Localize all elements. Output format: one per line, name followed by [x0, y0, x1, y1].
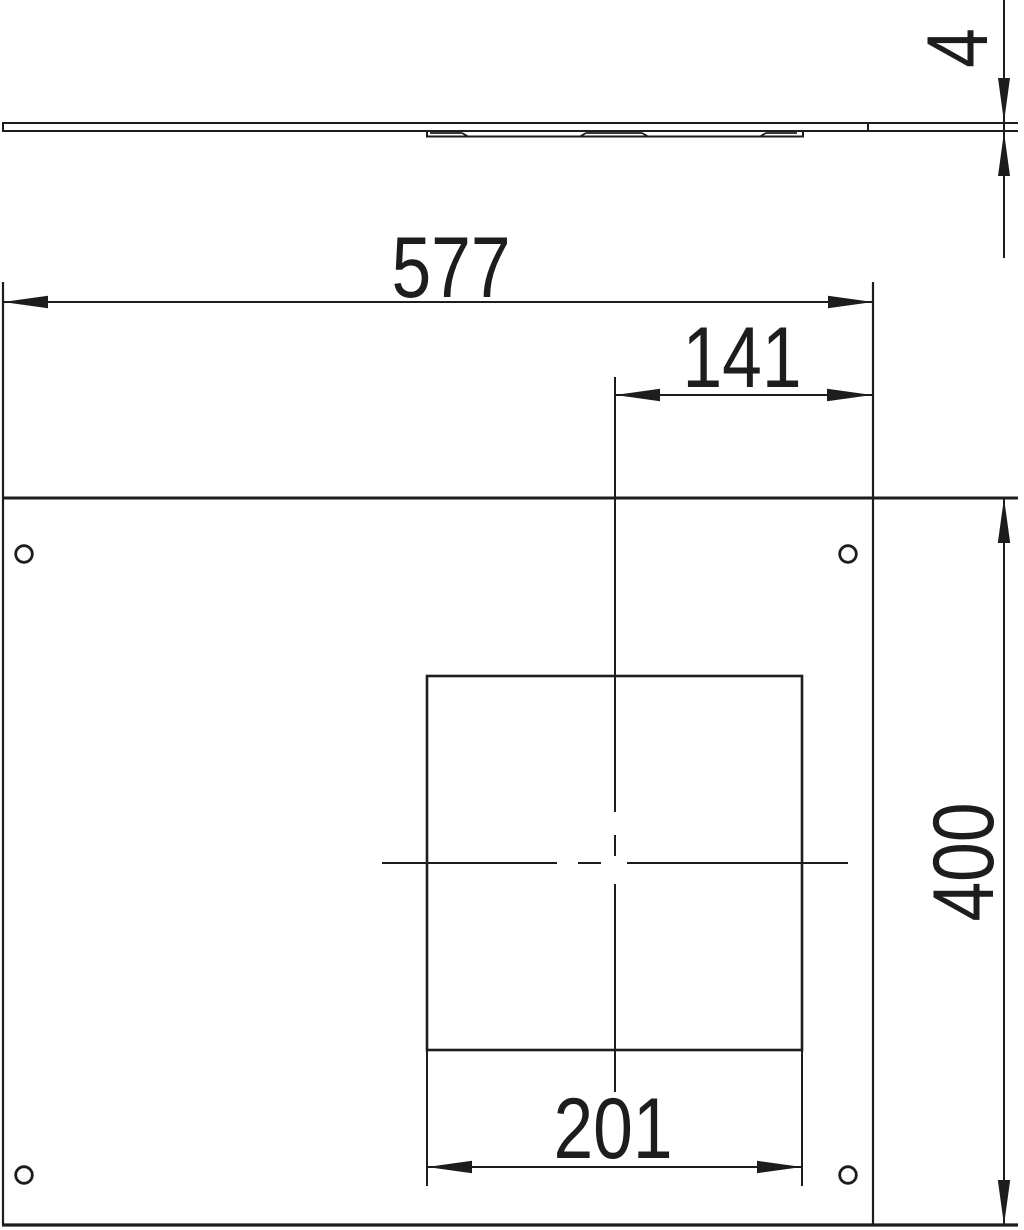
arrowhead-down-icon	[998, 78, 1010, 122]
plan-view	[2, 282, 1018, 1225]
offset-dim-label: 141	[682, 309, 801, 406]
arrowhead-up-icon	[998, 132, 1010, 176]
mounting-hole-bottom-left	[16, 1167, 33, 1184]
width-dim-label: 577	[391, 219, 510, 316]
center-offset-dimension: 141	[615, 309, 872, 406]
arrowhead-right-icon	[757, 1161, 802, 1173]
arrowhead-up-icon	[998, 498, 1010, 543]
mounting-hole-bottom-right	[840, 1167, 857, 1184]
arrowhead-left-icon	[3, 296, 48, 308]
arrowhead-right-icon	[827, 389, 872, 401]
cutout-dim-label: 201	[553, 1080, 672, 1177]
drawing-svg: 4 577 141	[0, 0, 1024, 1230]
arrowhead-right-icon	[828, 296, 873, 308]
mounting-hole-top-left	[16, 546, 33, 563]
side-profile-view	[3, 122, 868, 137]
mounting-hole-top-right	[840, 546, 857, 563]
arrowhead-left-icon	[615, 389, 660, 401]
technical-drawing-canvas: 4 577 141	[0, 0, 1024, 1230]
height-dim-label: 400	[915, 802, 1012, 921]
overall-height-dimension: 400	[915, 498, 1012, 1225]
thickness-dim-label: 4	[909, 28, 1006, 68]
overall-width-dimension: 577	[3, 219, 873, 316]
arrowhead-down-icon	[998, 1180, 1010, 1225]
arrowhead-left-icon	[427, 1161, 472, 1173]
thickness-dimension: 4	[868, 0, 1018, 258]
